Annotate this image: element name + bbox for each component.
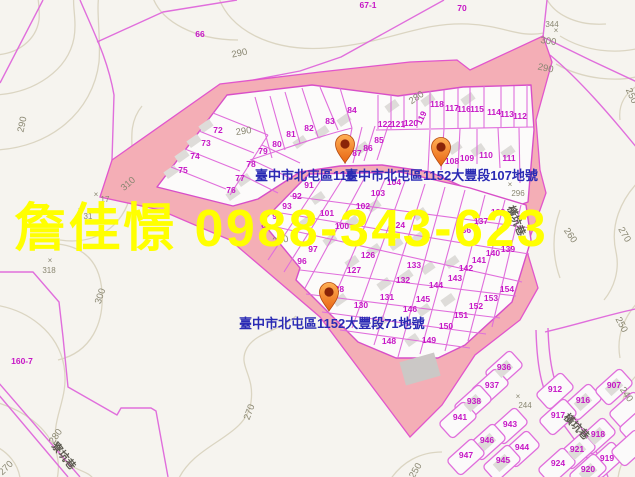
parcel-number: 937: [485, 380, 499, 390]
parcel-number: 936: [497, 362, 511, 372]
contour-label: 290: [231, 47, 249, 61]
parcel-number: 116: [457, 104, 471, 114]
parcel-number: 75: [178, 165, 188, 175]
parcel-number: 146: [403, 304, 417, 314]
contour-label: 250: [407, 461, 424, 477]
map-viewport: 6667-170160-7727374757677787980818283848…: [0, 0, 635, 477]
contour-label: 300: [540, 35, 557, 48]
parcel-number: 920: [581, 464, 595, 474]
parcel-number: 918: [591, 429, 605, 439]
parcel-number: 943: [503, 419, 517, 429]
parcel-number: 924: [551, 458, 565, 468]
contour-label: 260: [561, 226, 579, 245]
parcel-number: 86: [363, 143, 373, 153]
spot-height-value: 244: [518, 401, 532, 410]
parcel-number: 153: [484, 293, 498, 303]
parcel-number: 132: [396, 275, 410, 285]
contour-label: 270: [615, 225, 632, 244]
marker-address-label: 臺中市北屯區115: [255, 168, 354, 183]
parcel-number: 947: [459, 450, 473, 460]
parcel-number: 145: [416, 294, 430, 304]
parcel-number: 144: [429, 280, 443, 290]
parcel-number: 142: [459, 263, 473, 273]
parcel-number: 77: [235, 173, 245, 183]
parcel-number: 84: [347, 105, 357, 115]
contour-label: 250: [623, 86, 635, 105]
parcel-number: 130: [354, 300, 368, 310]
parcel-number: 151: [454, 310, 468, 320]
parcel-number: 127: [347, 265, 361, 275]
watermark: 詹佳憬 0988-343-623: [14, 200, 548, 258]
parcel-number: 114: [487, 107, 501, 117]
parcel-number: 67-1: [359, 0, 376, 10]
parcel-number: 916: [576, 395, 590, 405]
parcel-number: 66: [195, 29, 205, 39]
parcel-number: 118: [430, 99, 444, 109]
parcel-number: 149: [422, 335, 436, 345]
parcel-number: 945: [496, 455, 510, 465]
parcel-number: 81: [286, 129, 296, 139]
parcel-number: 919: [600, 453, 614, 463]
parcel-number: 160-7: [11, 356, 33, 366]
parcel-number: 85: [374, 135, 384, 145]
parcel-number: 72: [213, 125, 223, 135]
parcel-number: 148: [382, 336, 396, 346]
parcel-number: 112: [513, 111, 527, 121]
parcel-number: 941: [453, 412, 467, 422]
parcel-number: 83: [325, 116, 335, 126]
parcel-number: 76: [226, 185, 236, 195]
parcel-number: 131: [380, 292, 394, 302]
spot-height-mark: ×: [94, 190, 99, 199]
spot-height-mark: ×: [516, 392, 521, 401]
parcel-number: 109: [460, 153, 474, 163]
parcel-number: 113: [500, 109, 514, 119]
parcel-number: 152: [469, 301, 483, 311]
parcel-number: 70: [457, 3, 467, 13]
contour-label: 300: [93, 287, 108, 305]
parcel-number: 110: [479, 150, 493, 160]
parcel-number: 80: [272, 139, 282, 149]
road-name-label: 寮坑巷: [48, 439, 79, 473]
contour-label: 290: [16, 116, 30, 134]
parcel-number: 111: [502, 153, 516, 163]
spot-height-value: 344: [545, 20, 559, 29]
parcel-number: 133: [407, 260, 421, 270]
spot-height-value: 296: [511, 189, 525, 198]
parcel-number: 946: [480, 435, 494, 445]
parcel-number: 103: [371, 188, 385, 198]
parcel-number: 79: [258, 146, 268, 156]
parcel-number: 74: [190, 151, 200, 161]
contour-label: 290: [235, 125, 252, 138]
cadastral-map-canvas[interactable]: 6667-170160-7727374757677787980818283848…: [0, 0, 635, 477]
marker-address-label: 臺中市北屯區1152大豐段71地號: [239, 316, 425, 331]
parcel-number: 912: [548, 384, 562, 394]
spot-height-value: 318: [42, 266, 56, 275]
marker-address-label: 臺中市北屯區1152大豐段107地號: [345, 168, 538, 183]
parcel-number: 73: [201, 138, 211, 148]
parcel-number: 115: [470, 104, 484, 114]
parcel-number: 150: [439, 321, 453, 331]
contour-label: 250: [613, 315, 630, 334]
contour-label: 270: [242, 403, 258, 422]
parcel-number: 82: [304, 123, 314, 133]
parcel-number: 944: [515, 442, 529, 452]
parcel-number: 921: [570, 444, 584, 454]
parcel-number: 143: [448, 273, 462, 283]
parcel-number: 938: [467, 396, 481, 406]
parcel-number: 154: [500, 284, 514, 294]
